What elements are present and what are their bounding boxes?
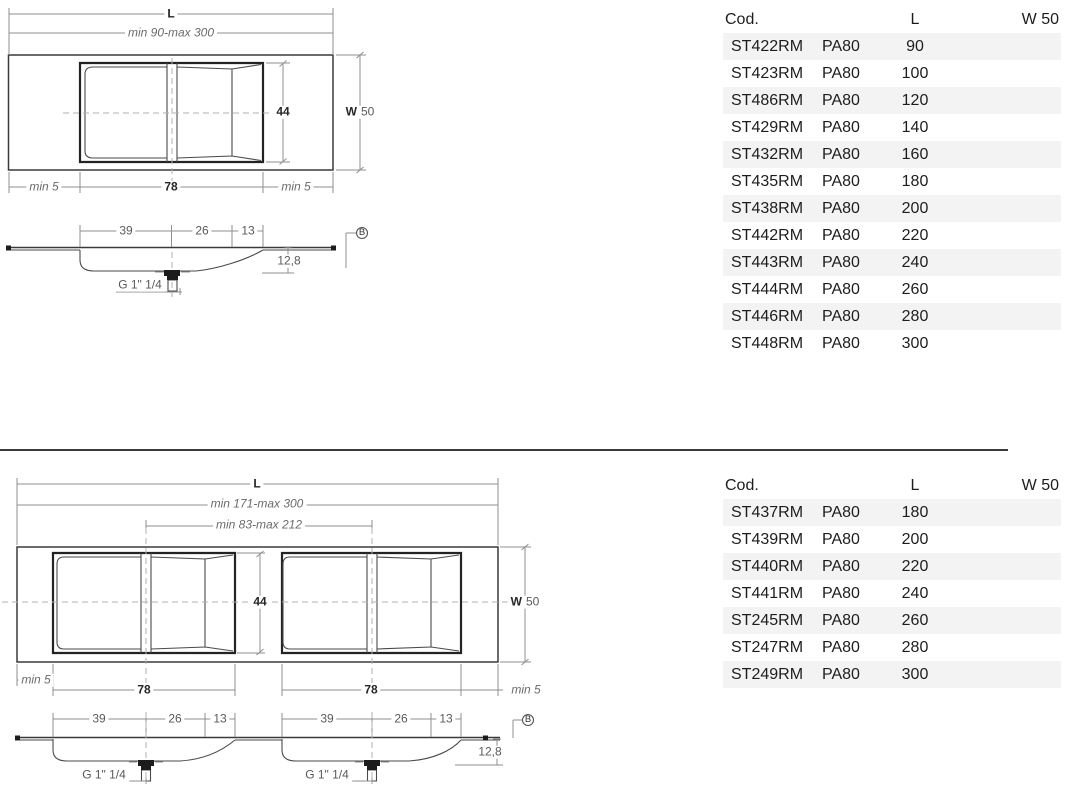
dim-width: W50 [508,596,543,609]
dim-26: 26 [192,225,211,238]
dim-basin2-width: 78 [361,684,380,697]
cell-series: PA80 [822,335,860,353]
cell-code: ST423RM [731,65,803,83]
dim-right-margin: min 5 [508,684,543,697]
cell-length: 220 [885,558,945,576]
callout-b-label: B [359,228,365,238]
header-length: L [885,11,945,29]
cell-series: PA80 [822,200,860,218]
cell-length: 120 [885,92,945,110]
cell-code: ST441RM [731,585,803,603]
width-label: W [346,105,357,119]
table-row: ST444RMPA80260 [723,276,1061,303]
table-row: ST249RMPA80300 [723,661,1061,688]
cell-length: 100 [885,65,945,83]
cell-length: 260 [885,612,945,630]
header-length: L [885,477,945,495]
cell-length: 300 [885,335,945,353]
dim-basin-width: 78 [161,181,180,194]
cell-series: PA80 [822,254,860,272]
table-row: ST446RMPA80280 [723,303,1061,330]
cell-code: ST247RM [731,639,803,657]
table-row: ST429RMPA80140 [723,114,1061,141]
spec-table-double: Cod. L W 50 ST437RMPA80180 ST439RMPA8020… [723,472,1061,688]
table-row: ST435RMPA80180 [723,168,1061,195]
table-row: ST448RMPA80300 [723,330,1061,357]
cell-length: 180 [885,504,945,522]
table-header: Cod. L W 50 [723,6,1061,33]
dim-13: 13 [436,713,455,726]
dim-39: 39 [89,713,108,726]
cell-length: 160 [885,146,945,164]
section-divider [0,449,1008,451]
cell-series: PA80 [822,504,860,522]
cell-series: PA80 [822,92,860,110]
header-width: W 50 [1022,11,1059,29]
cell-code: ST437RM [731,504,803,522]
dim-basin1-width: 78 [134,684,153,697]
table-row: ST486RMPA80120 [723,87,1061,114]
cell-series: PA80 [822,612,860,630]
cell-length: 240 [885,585,945,603]
cell-code: ST245RM [731,612,803,630]
cell-series: PA80 [822,227,860,245]
table-row: ST247RMPA80280 [723,634,1061,661]
dim-basin-depth: 44 [250,596,269,609]
table-row: ST437RMPA80180 [723,499,1061,526]
cell-length: 200 [885,200,945,218]
dim-overall-length: L [250,478,263,491]
header-code: Cod. [725,11,759,29]
dim-26: 26 [165,713,184,726]
cell-length: 260 [885,281,945,299]
dim-centers-range: min 83-max 212 [213,519,305,532]
dim-thickness: 12,8 [274,255,303,268]
cell-code: ST439RM [731,531,803,549]
spec-table-single: Cod. L W 50 ST422RMPA8090 ST423RMPA80100… [723,6,1061,357]
cell-series: PA80 [822,531,860,549]
table-row: ST439RMPA80200 [723,526,1061,553]
dim-26: 26 [391,713,410,726]
dim-39: 39 [317,713,336,726]
cell-code: ST486RM [731,92,803,110]
dim-length-range: min 90-max 300 [125,27,217,40]
cell-series: PA80 [822,281,860,299]
cell-code: ST442RM [731,227,803,245]
cell-series: PA80 [822,639,860,657]
cell-code: ST448RM [731,335,803,353]
drain-size-label: G 1" 1/4 [302,769,352,782]
cell-code: ST446RM [731,308,803,326]
table-row: ST438RMPA80200 [723,195,1061,222]
cell-code: ST422RM [731,38,803,56]
cell-series: PA80 [822,308,860,326]
dim-left-margin: min 5 [18,674,53,687]
cell-series: PA80 [822,666,860,684]
cell-series: PA80 [822,585,860,603]
header-width: W 50 [1022,477,1059,495]
cell-code: ST440RM [731,558,803,576]
cell-series: PA80 [822,173,860,191]
width-label: W [511,595,522,609]
callout-b-label: B [525,715,531,725]
width-value: 50 [361,105,374,119]
cell-length: 280 [885,308,945,326]
width-value: 50 [526,595,539,609]
cell-length: 220 [885,227,945,245]
dim-width: W50 [343,106,378,119]
cell-series: PA80 [822,119,860,137]
dim-13: 13 [238,225,257,238]
cell-series: PA80 [822,558,860,576]
dim-right-margin: min 5 [278,181,313,194]
cell-length: 300 [885,666,945,684]
table-row: ST440RMPA80220 [723,553,1061,580]
cell-length: 140 [885,119,945,137]
cell-length: 200 [885,531,945,549]
table-row: ST423RMPA80100 [723,60,1061,87]
table-row: ST442RMPA80220 [723,222,1061,249]
drain-size-label: G 1" 1/4 [79,769,129,782]
cell-series: PA80 [822,38,860,56]
cell-series: PA80 [822,146,860,164]
cell-length: 90 [885,38,945,56]
cell-code: ST438RM [731,200,803,218]
cell-length: 280 [885,639,945,657]
dim-overall-length: L [164,8,177,21]
cell-code: ST249RM [731,666,803,684]
drain-size-label: G 1" 1/4 [115,279,165,292]
table-row: ST432RMPA80160 [723,141,1061,168]
dim-39: 39 [116,225,135,238]
cell-series: PA80 [822,65,860,83]
table-row: ST441RMPA80240 [723,580,1061,607]
dim-basin-depth: 44 [273,106,292,119]
table-header: Cod. L W 50 [723,472,1061,499]
header-code: Cod. [725,477,759,495]
cell-code: ST444RM [731,281,803,299]
cell-length: 180 [885,173,945,191]
dim-thickness: 12,8 [475,746,504,759]
dim-left-margin: min 5 [26,181,61,194]
catalog-page: L min 90-max 300 44 W50 min 5 78 min 5 3… [0,0,1067,786]
cell-code: ST435RM [731,173,803,191]
table-row: ST245RMPA80260 [723,607,1061,634]
cell-code: ST432RM [731,146,803,164]
dim-length-range: min 171-max 300 [208,498,307,511]
cell-code: ST443RM [731,254,803,272]
cell-length: 240 [885,254,945,272]
table-row: ST443RMPA80240 [723,249,1061,276]
table-row: ST422RMPA8090 [723,33,1061,60]
dim-13: 13 [210,713,229,726]
cell-code: ST429RM [731,119,803,137]
